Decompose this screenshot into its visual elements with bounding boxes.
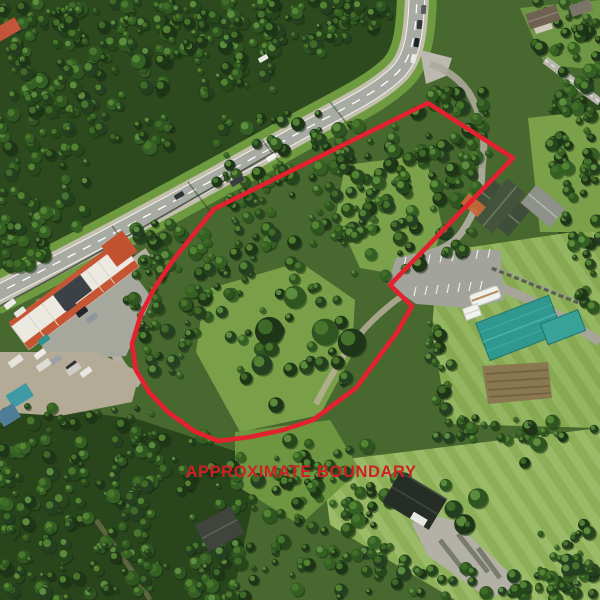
- aerial-photo: APPROXIMATE BOUNDARY: [0, 0, 600, 600]
- car: [417, 20, 423, 29]
- garden-patch: [482, 362, 552, 404]
- boundary-label: APPROXIMATE BOUNDARY: [185, 463, 416, 481]
- car: [421, 5, 427, 14]
